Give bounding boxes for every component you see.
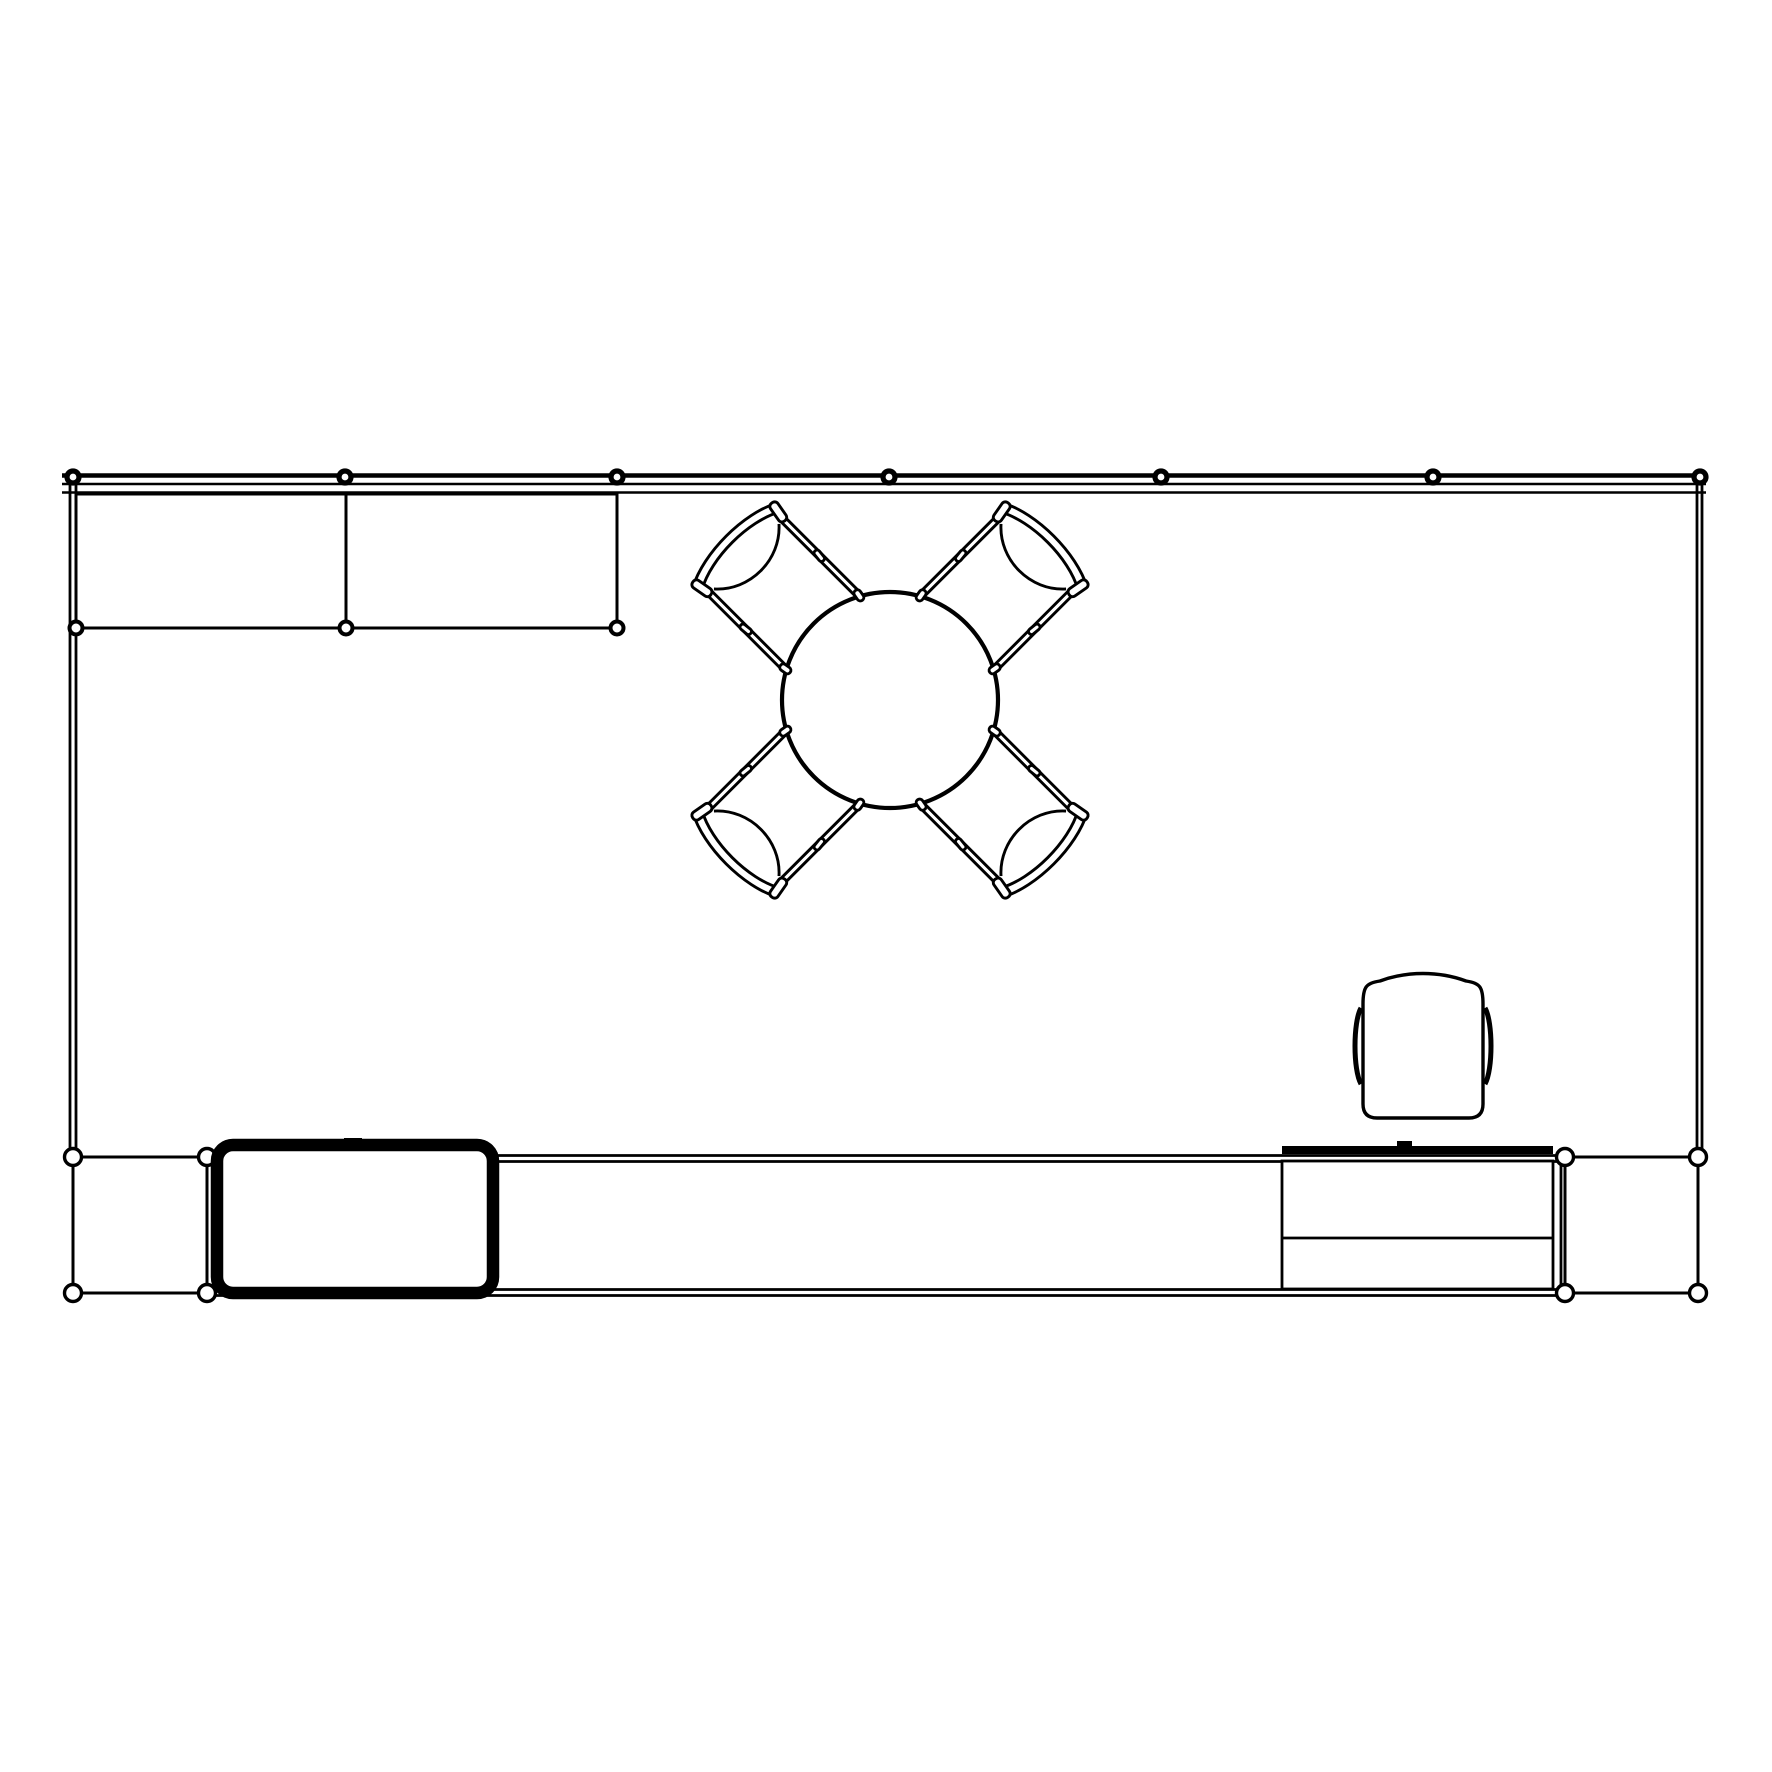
desk-chair-body xyxy=(1363,974,1483,1119)
cabinet-node xyxy=(611,622,624,635)
desk-outline xyxy=(1282,1161,1553,1289)
cabinet-node xyxy=(70,622,83,635)
tv-screen xyxy=(217,1138,493,1293)
panel-node xyxy=(199,1285,216,1302)
right-end-panel xyxy=(1565,1157,1698,1293)
desk-task-chair xyxy=(1355,974,1491,1119)
wall-post xyxy=(1427,471,1439,483)
panel-node xyxy=(65,1149,82,1166)
round-table xyxy=(782,592,998,808)
cabinet-node xyxy=(340,622,353,635)
panel-node xyxy=(1690,1285,1707,1302)
dining-set xyxy=(683,493,1096,906)
left-end-panel xyxy=(73,1157,207,1293)
wall-post xyxy=(1694,471,1706,483)
wall-post xyxy=(67,471,79,483)
wall-cabinets xyxy=(70,494,624,635)
desk-chair-left-armrest xyxy=(1355,1008,1361,1084)
wall-post xyxy=(1155,471,1167,483)
panel-node xyxy=(1690,1149,1707,1166)
panel-node xyxy=(1557,1149,1574,1166)
desk xyxy=(1282,1141,1553,1289)
panel-node xyxy=(65,1285,82,1302)
wall-post xyxy=(339,471,351,483)
floorplan-drawing xyxy=(0,0,1772,1772)
wall-post xyxy=(883,471,895,483)
wall-post xyxy=(611,471,623,483)
desk-back-rail xyxy=(1282,1146,1553,1154)
panel-node xyxy=(1557,1285,1574,1302)
floorplan-canvas xyxy=(0,0,1772,1772)
tv-outline xyxy=(217,1145,493,1293)
desk-chair-right-armrest xyxy=(1485,1008,1491,1084)
